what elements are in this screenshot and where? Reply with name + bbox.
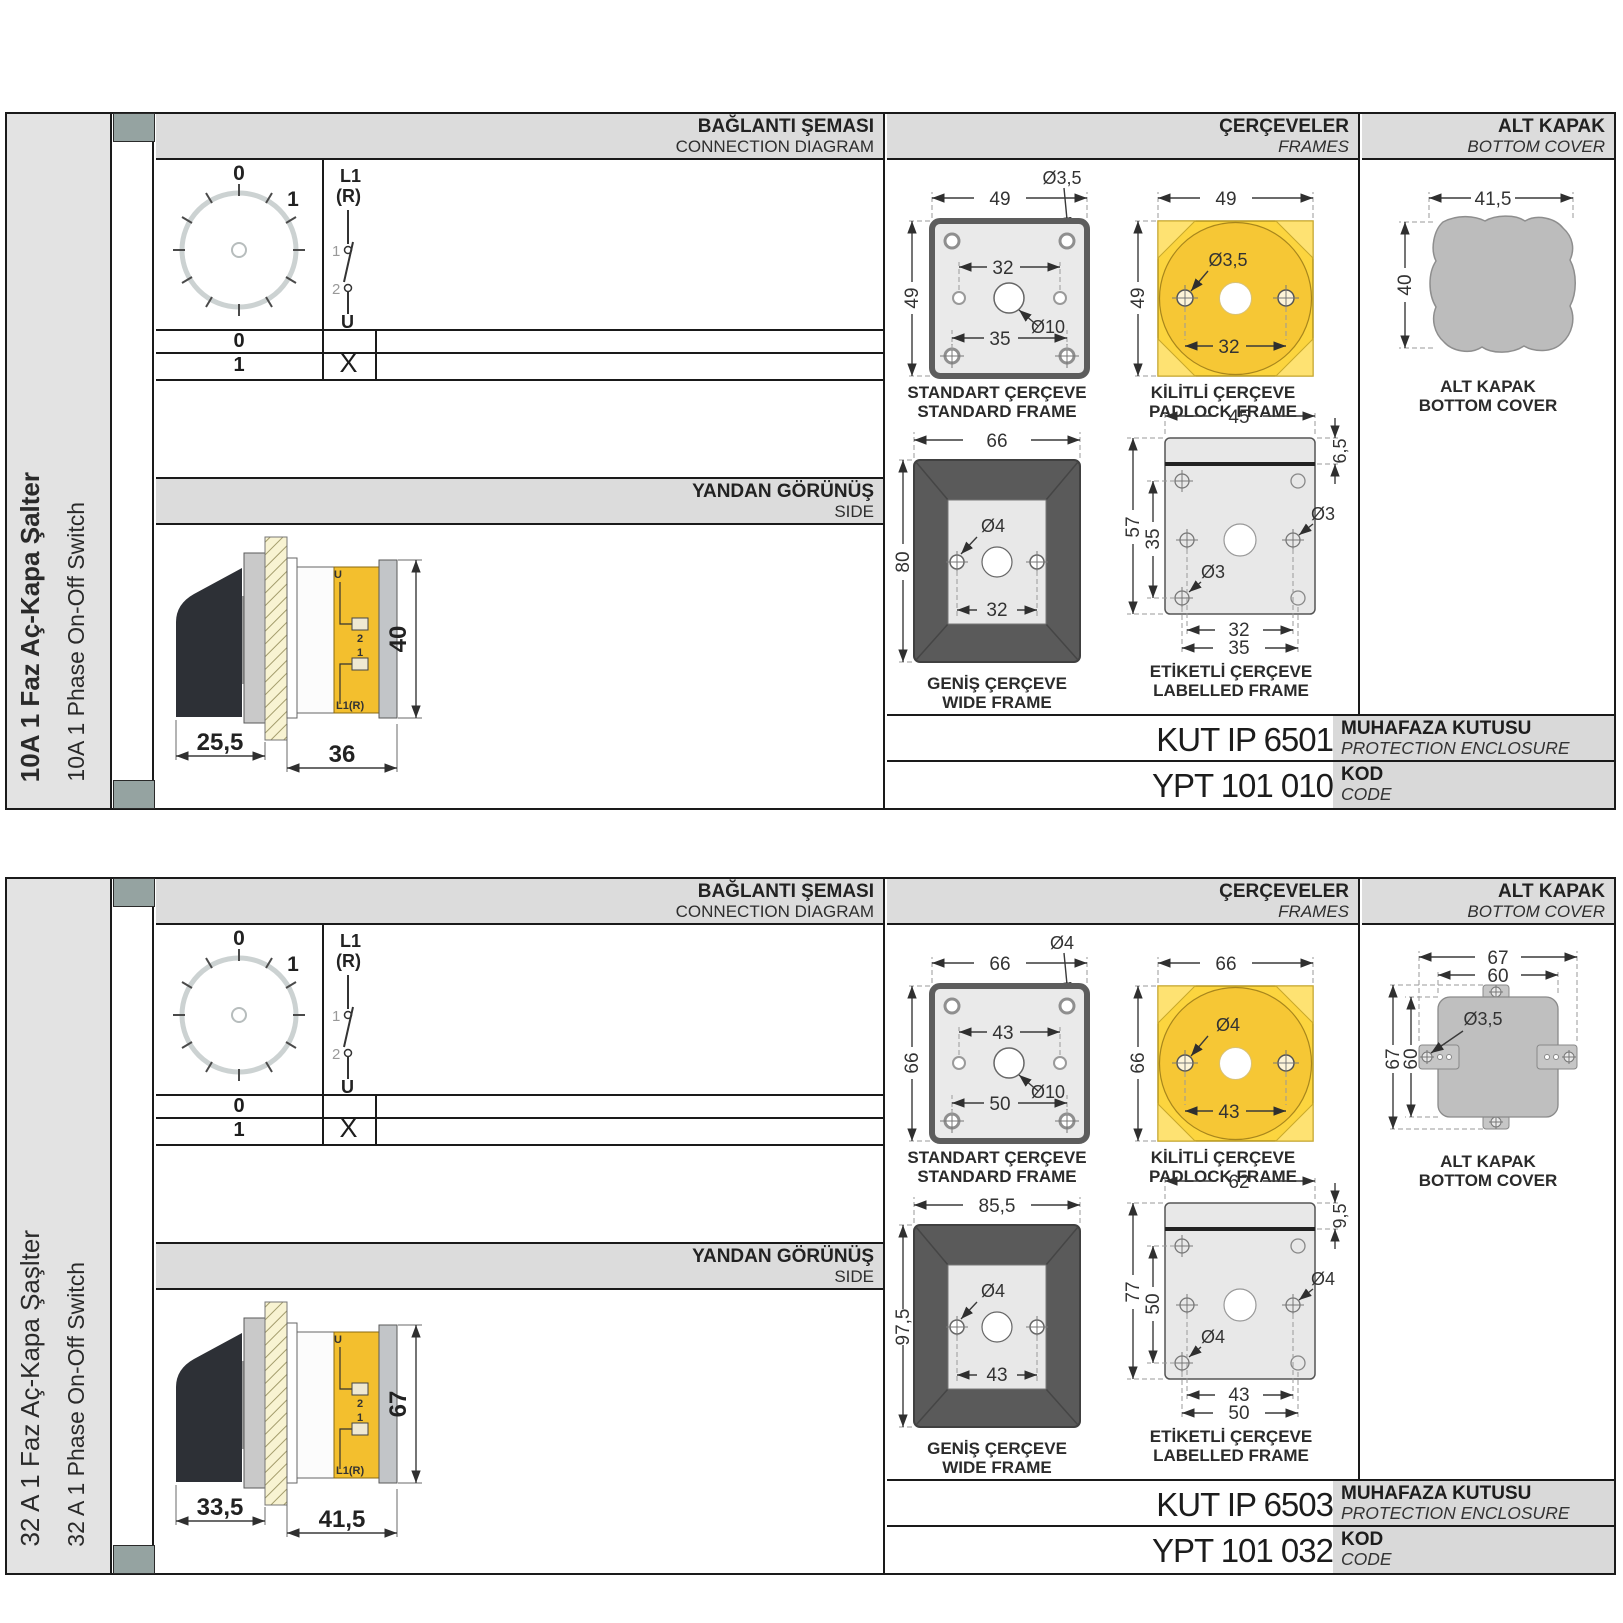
- labelled-frame-figure: 62 9,5 77: [1113, 1163, 1349, 1465]
- sidebar: 10A 1 Faz Aç-Kapa Şalter 10A 1 Phase On-…: [7, 114, 112, 808]
- table-divider: [375, 1094, 377, 1144]
- switch-schematic: L1 (R) 1 2 U: [326, 162, 446, 329]
- table-row-1-mark: X: [322, 1113, 375, 1144]
- connection-diagram-panel: 0 1 L1 (R) 1 2 U 0 1 X YANDAN GÖRÜNÜŞ: [156, 925, 885, 1573]
- bottom-cover-caption-en: BOTTOM COVER: [1363, 396, 1613, 415]
- padlock-frame-drawing: 49 49 Ø3,5 32: [1117, 166, 1329, 381]
- dial-position-1: 1: [287, 953, 299, 976]
- lab-dim-bottom-2: 35: [1228, 638, 1249, 659]
- wide-frame-figure: 66 80 Ø4 32: [891, 420, 1103, 712]
- standard-frame-drawing: 66 Ø4 66 43 Ø10: [891, 931, 1103, 1146]
- lab-dim-hole-bottom: Ø4: [1201, 1327, 1225, 1347]
- header-frames-en: FRAMES: [887, 902, 1349, 921]
- enclosure-label: MUHAFAZA KUTUSU PROTECTION ENCLOSURE: [1333, 1481, 1614, 1525]
- enclosure-row: KUT IP 6501 MUHAFAZA KUTUSU PROTECTION E…: [887, 714, 1614, 760]
- terminal-1: [352, 1423, 368, 1435]
- wide-dim-hole: Ø4: [981, 1281, 1005, 1301]
- enclosure-code-value: KUT IP 6503: [887, 1481, 1333, 1525]
- tab-square-bottom: [113, 1545, 155, 1574]
- enclosure-label-tr: MUHAFAZA KUTUSU: [1341, 718, 1614, 739]
- header-frames-tr: ÇERÇEVELER: [887, 881, 1349, 902]
- product-title: 32 A 1 Faz Aç-Kapa Şaşlter: [15, 1230, 46, 1547]
- table-row-0-position: 0: [156, 1095, 322, 1118]
- standard-frame-caption-en: STANDARD FRAME: [891, 1167, 1103, 1186]
- lab-dim-hole-bottom: Ø3: [1201, 562, 1225, 582]
- labelled-frame-caption-tr: ETİKETLİ ÇERÇEVE: [1113, 1427, 1349, 1446]
- tab-column: [114, 114, 154, 808]
- switch-dial-drawing: 0 1: [156, 162, 322, 329]
- side-view-header: YANDAN GÖRÜNÜŞ SIDE: [156, 1242, 883, 1290]
- bottom-cover-caption-tr: ALT KAPAK: [1363, 377, 1613, 396]
- standard-frame-caption-tr: STANDART ÇERÇEVE: [891, 383, 1103, 402]
- pad-dim-width: 49: [1215, 189, 1236, 210]
- cover-dim-height: 40: [1395, 274, 1416, 295]
- padlock-frame-drawing: 66 66 Ø4 43: [1117, 931, 1329, 1146]
- side-dim-body: 36: [329, 741, 356, 768]
- lab-dim-height: 77: [1123, 1281, 1144, 1302]
- schematic-u-label: U: [341, 312, 354, 329]
- enclosure-label-en: PROTECTION ENCLOSURE: [1341, 739, 1614, 758]
- std-dim-height: 66: [902, 1052, 923, 1073]
- lab-dim-bottom-2: 50: [1228, 1403, 1249, 1424]
- dial-position-1: 1: [287, 188, 299, 211]
- wide-frame-caption-tr: GENİŞ ÇERÇEVE: [891, 1439, 1103, 1458]
- terminal-l1r-label: L1(R): [336, 1465, 364, 1477]
- schematic-u-label: U: [341, 1077, 354, 1094]
- lab-dim-inner-height: 35: [1143, 528, 1164, 549]
- side-dim-height: 40: [385, 626, 412, 653]
- labelled-frame-caption-en: LABELLED FRAME: [1113, 681, 1349, 700]
- table-row-1-mark: X: [322, 348, 375, 379]
- std-dim-inner: 32: [992, 258, 1013, 279]
- code-row: YPT 101 032 KOD CODE: [887, 1525, 1614, 1573]
- enclosure-label: MUHAFAZA KUTUSU PROTECTION ENCLOSURE: [1333, 716, 1614, 760]
- wide-frame-figure: 85,5 97,5 Ø4 4: [891, 1185, 1103, 1477]
- cover-dim-width: 41,5: [1475, 189, 1512, 210]
- header-frames: ÇERÇEVELER FRAMES: [887, 114, 1360, 160]
- schematic-l1-label: L1: [340, 166, 361, 186]
- standard-frame-caption-tr: STANDART ÇERÇEVE: [891, 1148, 1103, 1167]
- frames-panel: 66 Ø4 66 43 Ø10: [887, 925, 1360, 1479]
- pad-dim-inner: 43: [1218, 1102, 1239, 1123]
- code-label-tr: KOD: [1341, 1529, 1614, 1550]
- dial-position-0: 0: [233, 162, 245, 185]
- product-title: 10A 1 Faz Aç-Kapa Şalter: [15, 472, 46, 782]
- side-view-header-tr: YANDAN GÖRÜNÜŞ: [156, 1246, 874, 1267]
- terminal-2: [352, 618, 368, 630]
- lab-dim-hole-mid: Ø3: [1311, 504, 1335, 524]
- table-divider: [322, 925, 324, 1144]
- lab-dim-width: 45: [1228, 407, 1249, 428]
- switch-schematic: L1 (R) 1 2 U: [326, 927, 446, 1094]
- side-view-header: YANDAN GÖRÜNÜŞ SIDE: [156, 477, 883, 525]
- header-diagram-en: CONNECTION DIAGRAM: [156, 137, 874, 156]
- code-label: KOD CODE: [1333, 762, 1614, 808]
- code-rows: KUT IP 6501 MUHAFAZA KUTUSU PROTECTION E…: [887, 714, 1614, 808]
- switch-dial-drawing: 0 1: [156, 927, 322, 1094]
- product-code-value: YPT 101 032: [887, 1527, 1333, 1573]
- bottom-cover-figure: 67 60 67 60: [1363, 935, 1613, 1190]
- switch-knob: [176, 1333, 242, 1482]
- header-diagram-tr: BAĞLANTI ŞEMASI: [156, 881, 874, 902]
- standard-frame-figure: 66 Ø4 66 43 Ø10: [891, 931, 1103, 1186]
- wide-frame-caption-tr: GENİŞ ÇERÇEVE: [891, 674, 1103, 693]
- side-view-drawing: U 2 1 L1(R) 67 33,5 41,5: [164, 1293, 604, 1571]
- cover-dim-hole: Ø3,5: [1463, 1009, 1502, 1029]
- table-divider: [322, 160, 324, 379]
- lab-dim-height: 57: [1123, 516, 1144, 537]
- header-cover-tr: ALT KAPAK: [1362, 881, 1605, 902]
- side-view-header-en: SIDE: [156, 1267, 874, 1286]
- std-dim-bottom: 35: [989, 329, 1010, 350]
- schematic-contact-1: 1: [332, 1008, 340, 1025]
- product-code-value: YPT 101 010: [887, 762, 1333, 808]
- frames-panel: 49 Ø3,5 49 32 Ø: [887, 160, 1360, 714]
- wide-dim-inner: 43: [986, 1365, 1007, 1386]
- spacer-ring: [287, 558, 297, 718]
- product-section: 32 A 1 Faz Aç-Kapa Şaşlter 32 A 1 Phase …: [5, 877, 1616, 1575]
- pad-dim-height: 49: [1128, 287, 1149, 308]
- labelled-frame-caption-en: LABELLED FRAME: [1113, 1446, 1349, 1465]
- wide-dim-width: 85,5: [979, 1196, 1016, 1217]
- wide-frame-drawing: 66 80 Ø4 32: [891, 420, 1103, 672]
- mounting-panel-hatched: [265, 537, 287, 740]
- table-line: [156, 1144, 883, 1146]
- switch-knob: [176, 568, 242, 717]
- std-dim-height: 49: [902, 287, 923, 308]
- wide-dim-height: 80: [893, 551, 914, 572]
- code-label: KOD CODE: [1333, 1527, 1614, 1573]
- header-connection-diagram: BAĞLANTI ŞEMASI CONNECTION DIAGRAM: [156, 114, 885, 160]
- std-dim-width: 49: [989, 189, 1010, 210]
- enclosure-row: KUT IP 6503 MUHAFAZA KUTUSU PROTECTION E…: [887, 1479, 1614, 1525]
- pad-dim-hole: Ø3,5: [1208, 250, 1247, 270]
- table-line: [156, 379, 883, 381]
- standard-frame-figure: 49 Ø3,5 49 32 Ø: [891, 166, 1103, 421]
- bottom-cover-caption-tr: ALT KAPAK: [1363, 1152, 1613, 1171]
- wide-dim-hole: Ø4: [981, 516, 1005, 536]
- terminal-1: [352, 658, 368, 670]
- bottom-cover-figure: 41,5 40 ALT KAPAK BOTTOM COVER: [1363, 170, 1613, 415]
- terminal-2-label: 2: [357, 633, 363, 645]
- bottom-cover-drawing: 67 60 67 60: [1363, 935, 1613, 1150]
- header-cover-en: BOTTOM COVER: [1362, 137, 1605, 156]
- bottom-cover-panel: 67 67 ALT KAPAK BOTTOM COVER 67: [1362, 925, 1614, 1479]
- dial-position-0: 0: [233, 927, 245, 950]
- std-dim-inner: 43: [992, 1023, 1013, 1044]
- std-dim-center-hole: Ø10: [1031, 1082, 1065, 1102]
- lab-dim-hole-mid: Ø4: [1311, 1269, 1335, 1289]
- standard-frame-drawing: 49 Ø3,5 49 32 Ø: [891, 166, 1103, 381]
- switch-body-front: [297, 567, 334, 713]
- header-frames: ÇERÇEVELER FRAMES: [887, 879, 1360, 925]
- schematic-contact-2: 2: [332, 281, 340, 298]
- enclosure-label-tr: MUHAFAZA KUTUSU: [1341, 1483, 1614, 1504]
- bottom-cover-panel: 41,5 40 ALT KAPAK BOTTOM COVER 41,5: [1362, 160, 1614, 714]
- pad-dim-inner: 32: [1218, 337, 1239, 358]
- tab-column: [114, 879, 154, 1573]
- header-cover-en: BOTTOM COVER: [1362, 902, 1605, 921]
- cover-dim-width-2: 60: [1487, 966, 1508, 987]
- connection-diagram-panel: 0 1 L1 (R) 1 2 U 0 1 X YANDAN GÖRÜNÜŞ: [156, 160, 885, 808]
- sidebar: 32 A 1 Faz Aç-Kapa Şaşlter 32 A 1 Phase …: [7, 879, 112, 1573]
- std-dim-corner-hole: Ø3,5: [1042, 168, 1081, 188]
- tab-square-top: [113, 113, 155, 142]
- side-view-drawing: U 2 1 L1(R) 40 25,5 36: [164, 528, 604, 806]
- terminal-1-label: 1: [357, 647, 363, 659]
- side-dim-height: 67: [385, 1391, 412, 1418]
- wide-frame-drawing: 85,5 97,5 Ø4 4: [891, 1185, 1103, 1437]
- schematic-r-label: (R): [336, 951, 361, 971]
- pad-dim-hole: Ø4: [1216, 1015, 1240, 1035]
- code-label-en: CODE: [1341, 1550, 1614, 1569]
- pad-dim-width: 66: [1215, 954, 1236, 975]
- knob-backplate: [244, 1318, 265, 1488]
- header-bottom-cover: ALT KAPAK BOTTOM COVER: [1362, 114, 1614, 160]
- enclosure-code-value: KUT IP 6501: [887, 716, 1333, 760]
- mounting-panel-hatched: [265, 1302, 287, 1505]
- side-dim-knob: 25,5: [197, 729, 244, 756]
- terminal-l1r-label: L1(R): [336, 700, 364, 712]
- header-connection-diagram: BAĞLANTI ŞEMASI CONNECTION DIAGRAM: [156, 879, 885, 925]
- code-rows: KUT IP 6503 MUHAFAZA KUTUSU PROTECTION E…: [887, 1479, 1614, 1573]
- header-frames-en: FRAMES: [887, 137, 1349, 156]
- terminal-1-label: 1: [357, 1412, 363, 1424]
- spacer-ring: [287, 1323, 297, 1483]
- terminal-2: [352, 1383, 368, 1395]
- std-dim-width: 66: [989, 954, 1010, 975]
- tab-square-top: [113, 878, 155, 907]
- wide-dim-width: 66: [986, 431, 1007, 452]
- lab-dim-width: 62: [1228, 1172, 1249, 1193]
- pad-dim-height: 66: [1128, 1052, 1149, 1073]
- enclosure-label-en: PROTECTION ENCLOSURE: [1341, 1504, 1614, 1523]
- tab-square-bottom: [113, 780, 155, 809]
- bottom-cover-caption-en: BOTTOM COVER: [1363, 1171, 1613, 1190]
- table-divider: [375, 329, 377, 379]
- product-section: 10A 1 Faz Aç-Kapa Şalter 10A 1 Phase On-…: [5, 112, 1616, 810]
- lab-dim-band: 9,5: [1330, 1203, 1349, 1228]
- wide-frame-caption-en: WIDE FRAME: [891, 693, 1103, 712]
- terminal-u-label: U: [334, 1334, 342, 1346]
- switch-body-front: [297, 1332, 334, 1478]
- schematic-contact-2: 2: [332, 1046, 340, 1063]
- schematic-contact-1: 1: [332, 243, 340, 260]
- code-label-en: CODE: [1341, 785, 1614, 804]
- std-dim-center-hole: Ø10: [1031, 317, 1065, 337]
- knob-backplate: [244, 553, 265, 723]
- table-row-0-position: 0: [156, 330, 322, 353]
- bottom-cover-drawing: 41,5 40: [1363, 170, 1613, 375]
- table-row-1-position: 1: [156, 354, 322, 377]
- labelled-frame-caption-tr: ETİKETLİ ÇERÇEVE: [1113, 662, 1349, 681]
- header-diagram-tr: BAĞLANTI ŞEMASI: [156, 116, 874, 137]
- header-diagram-en: CONNECTION DIAGRAM: [156, 902, 874, 921]
- std-dim-bottom: 50: [989, 1094, 1010, 1115]
- header-bottom-cover: ALT KAPAK BOTTOM COVER: [1362, 879, 1614, 925]
- labelled-frame-drawing: 45 6,5 57: [1113, 398, 1349, 660]
- labelled-frame-drawing: 62 9,5 77: [1113, 1163, 1349, 1425]
- schematic-l1-label: L1: [340, 931, 361, 951]
- padlock-frame-figure: 49 49 Ø3,5 32: [1117, 166, 1329, 421]
- header-cover-tr: ALT KAPAK: [1362, 116, 1605, 137]
- header-frames-tr: ÇERÇEVELER: [887, 116, 1349, 137]
- side-view-header-en: SIDE: [156, 502, 874, 521]
- product-subtitle: 10A 1 Phase On-Off Switch: [63, 502, 90, 782]
- std-dim-corner-hole: Ø4: [1050, 933, 1074, 953]
- side-dim-knob: 33,5: [197, 1494, 244, 1521]
- table-row-1-position: 1: [156, 1119, 322, 1142]
- wide-dim-height: 97,5: [893, 1309, 914, 1346]
- side-dim-body: 41,5: [319, 1506, 366, 1533]
- padlock-frame-figure: 66 66 Ø4 43: [1117, 931, 1329, 1186]
- wide-dim-inner: 32: [986, 600, 1007, 621]
- side-view-header-tr: YANDAN GÖRÜNÜŞ: [156, 481, 874, 502]
- code-label-tr: KOD: [1341, 764, 1614, 785]
- terminal-u-label: U: [334, 569, 342, 581]
- product-subtitle: 32 A 1 Phase On-Off Switch: [63, 1262, 90, 1547]
- labelled-frame-figure: 45 6,5 57: [1113, 398, 1349, 700]
- wide-frame-caption-en: WIDE FRAME: [891, 1458, 1103, 1477]
- lab-dim-band: 6,5: [1330, 438, 1349, 463]
- standard-frame-caption-en: STANDARD FRAME: [891, 402, 1103, 421]
- terminal-2-label: 2: [357, 1398, 363, 1410]
- code-row: YPT 101 010 KOD CODE: [887, 760, 1614, 808]
- schematic-r-label: (R): [336, 186, 361, 206]
- lab-dim-inner-height: 50: [1143, 1293, 1164, 1314]
